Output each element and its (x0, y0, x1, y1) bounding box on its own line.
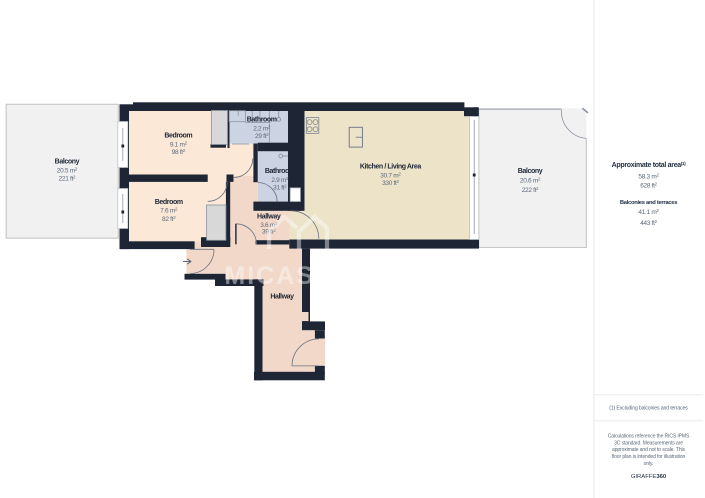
svg-text:Bedroom: Bedroom (155, 199, 183, 206)
svg-text:Approximate total area(1): Approximate total area(1) (612, 161, 687, 169)
svg-text:Bathroom: Bathroom (247, 116, 277, 123)
svg-text:Bathroom: Bathroom (265, 168, 295, 175)
svg-text:MICASA: MICASA (224, 262, 335, 290)
svg-text:58.3 m2: 58.3 m2 (638, 173, 659, 181)
svg-text:41.1 m2: 41.1 m2 (638, 208, 659, 216)
svg-text:approximate and not to scale.: approximate and not to scale. This (612, 447, 686, 453)
svg-text:Balcony: Balcony (55, 159, 80, 166)
svg-text:3C standard. Measurements are: 3C standard. Measurements are (614, 440, 683, 446)
svg-text:Hallway: Hallway (270, 294, 294, 301)
svg-text:(1) Excluding balconies and te: (1) Excluding balconies and terraces (609, 406, 688, 412)
svg-text:20.5 m2: 20.5 m2 (57, 166, 78, 174)
svg-text:floor plan is intended for ill: floor plan is intended for illustration (612, 454, 686, 460)
svg-text:20.6 m2: 20.6 m2 (520, 177, 541, 185)
svg-text:GIRAFFE360: GIRAFFE360 (631, 474, 667, 480)
svg-text:Calculations reference the RIC: Calculations reference the RICS IPMS (608, 434, 690, 440)
svg-text:Hallway: Hallway (257, 213, 281, 220)
svg-text:Balcony: Balcony (518, 168, 543, 175)
svg-text:Kitchen / Living Area: Kitchen / Living Area (360, 163, 421, 170)
svg-text:Bedroom: Bedroom (164, 132, 192, 139)
svg-text:Balconies and terraces: Balconies and terraces (620, 200, 677, 206)
svg-text:only.: only. (644, 461, 654, 467)
